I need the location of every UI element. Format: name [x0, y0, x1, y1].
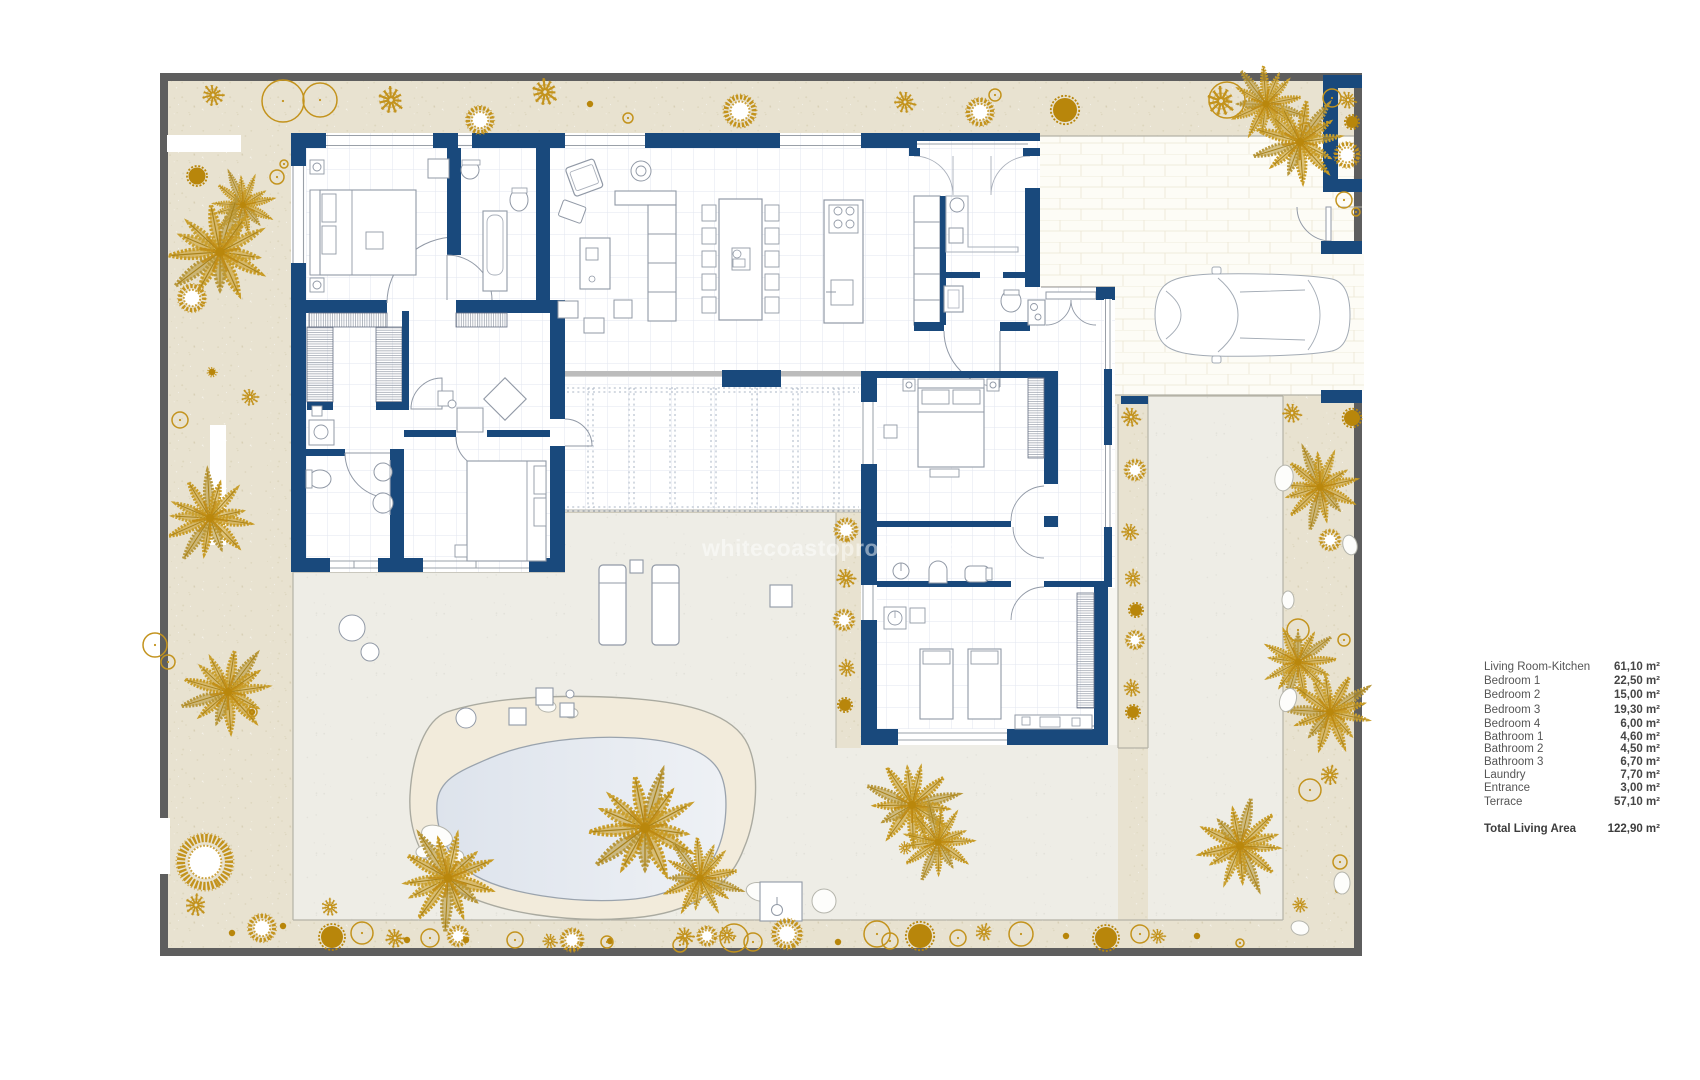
svg-text:Bedroom 4: Bedroom 4 — [1484, 718, 1541, 730]
svg-text:6,00 m²: 6,00 m² — [1620, 718, 1660, 730]
svg-text:Bedroom 3: Bedroom 3 — [1484, 704, 1540, 716]
svg-text:3,00 m²: 3,00 m² — [1620, 782, 1660, 794]
svg-text:4,50 m²: 4,50 m² — [1620, 743, 1660, 755]
svg-text:15,00 m²: 15,00 m² — [1614, 689, 1660, 701]
svg-text:Bedroom 1: Bedroom 1 — [1484, 675, 1540, 687]
svg-text:7,70 m²: 7,70 m² — [1620, 769, 1660, 781]
svg-text:6,70 m²: 6,70 m² — [1620, 756, 1660, 768]
svg-text:Terrace: Terrace — [1484, 796, 1522, 808]
svg-text:19,30 m²: 19,30 m² — [1614, 704, 1660, 716]
svg-text:122,90 m²: 122,90 m² — [1608, 823, 1661, 835]
svg-text:Bathroom 2: Bathroom 2 — [1484, 743, 1543, 755]
svg-text:whitecoastoproperties: whitecoastoproperties — [701, 535, 958, 561]
svg-text:Total Living Area: Total Living Area — [1484, 823, 1577, 835]
svg-text:Living Room-Kitchen: Living Room-Kitchen — [1484, 661, 1590, 673]
svg-text:4,60 m²: 4,60 m² — [1620, 731, 1660, 743]
svg-text:Laundry: Laundry — [1484, 769, 1526, 781]
svg-text:61,10 m²: 61,10 m² — [1614, 661, 1660, 673]
svg-text:57,10 m²: 57,10 m² — [1614, 796, 1660, 808]
svg-text:Bathroom 1: Bathroom 1 — [1484, 731, 1543, 743]
svg-text:Entrance: Entrance — [1484, 782, 1530, 794]
svg-text:Bedroom 2: Bedroom 2 — [1484, 689, 1540, 701]
svg-text:Bathroom 3: Bathroom 3 — [1484, 756, 1543, 768]
svg-text:22,50 m²: 22,50 m² — [1614, 675, 1660, 687]
